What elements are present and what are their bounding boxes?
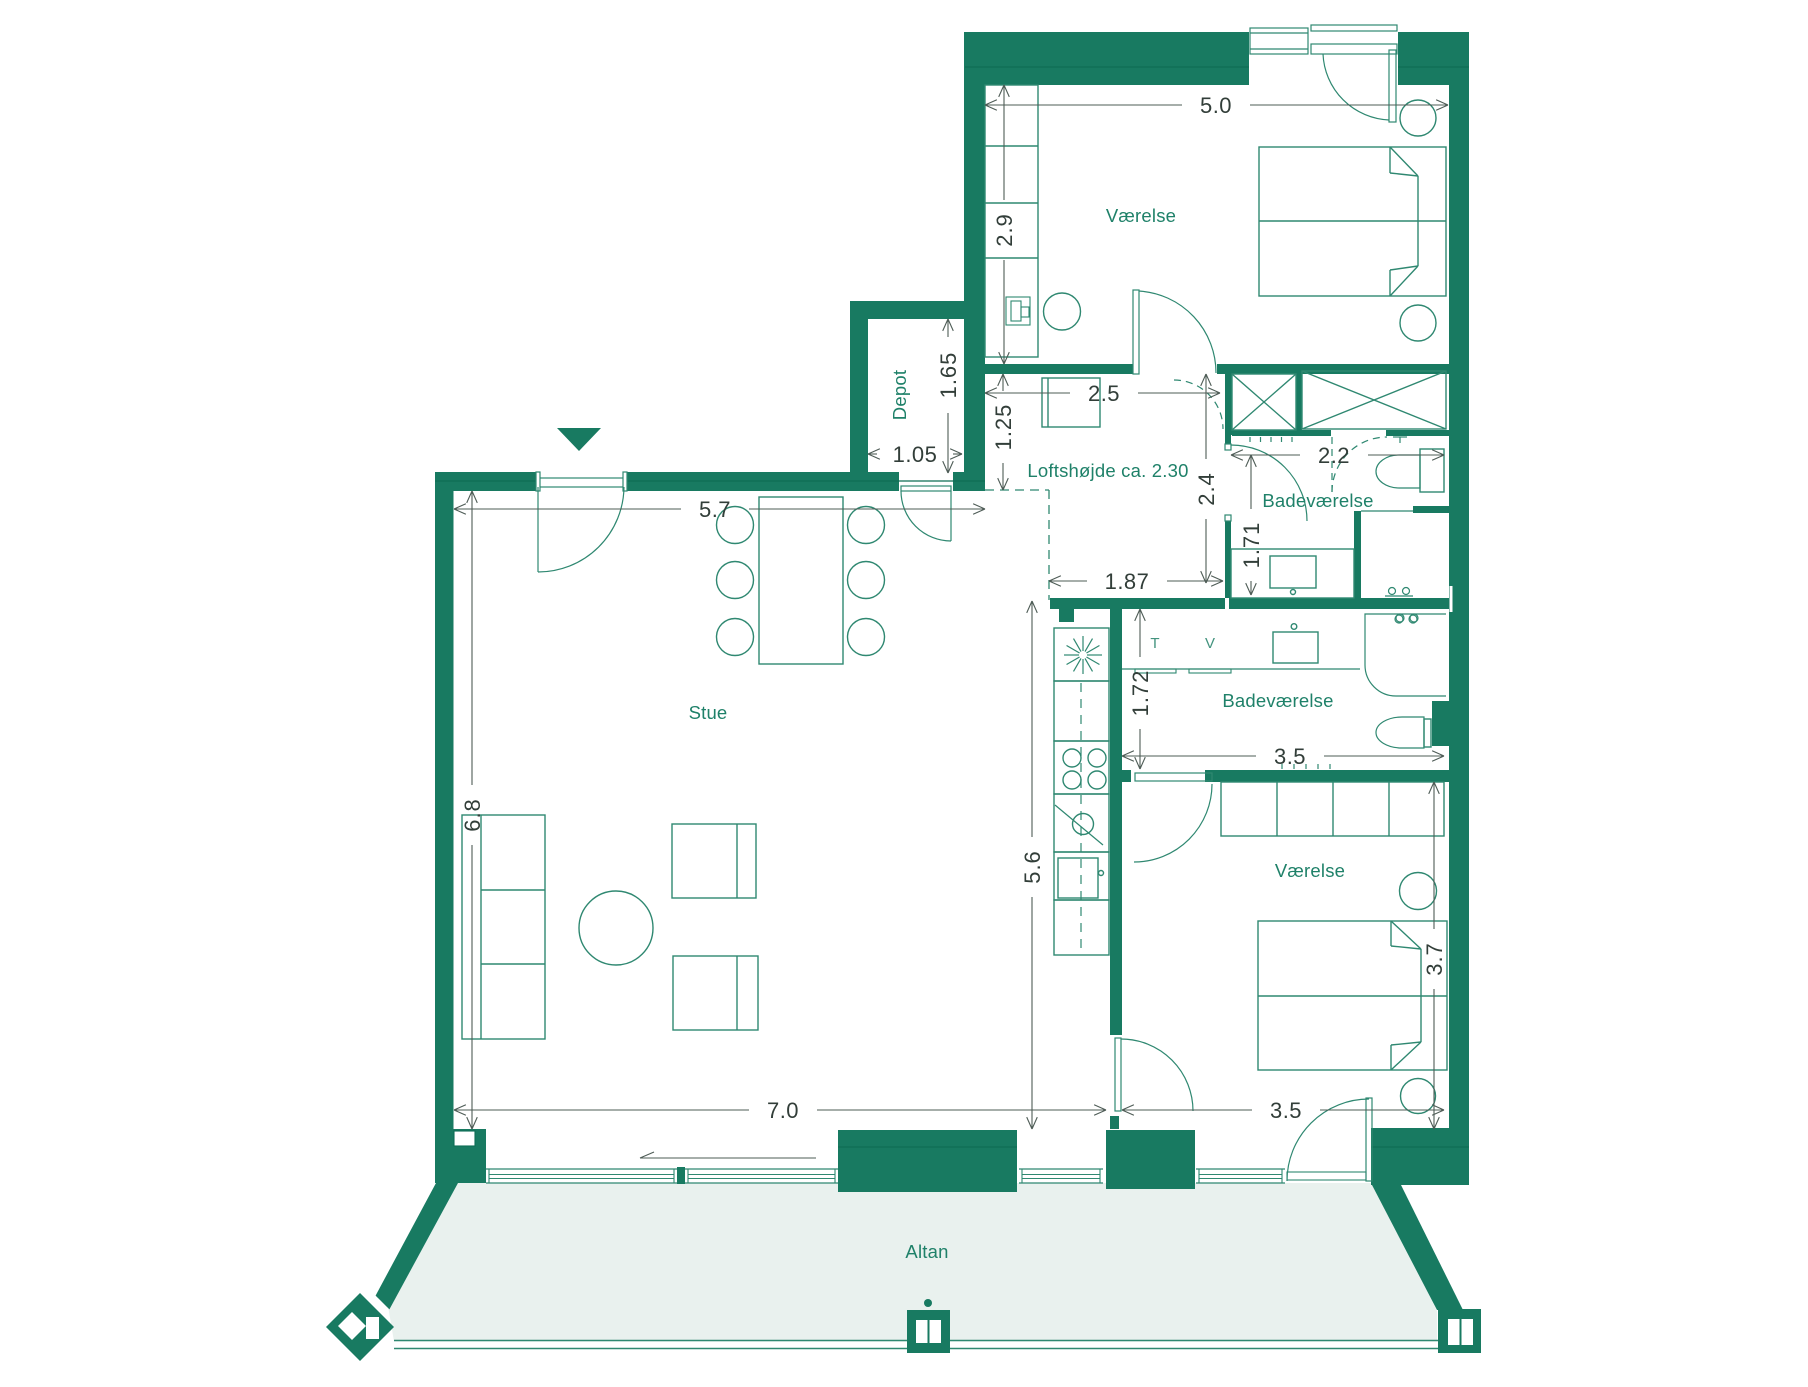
svg-text:Badeværelse: Badeværelse — [1222, 690, 1333, 711]
svg-text:V: V — [1205, 635, 1215, 652]
svg-text:Værelse: Værelse — [1275, 860, 1345, 881]
svg-text:3.5: 3.5 — [1270, 1098, 1302, 1123]
svg-text:Stue: Stue — [689, 702, 728, 723]
svg-text:3.7: 3.7 — [1422, 942, 1447, 976]
svg-text:2.4: 2.4 — [1194, 472, 1219, 506]
svg-text:Depot: Depot — [889, 370, 910, 420]
svg-text:T: T — [1150, 635, 1159, 652]
svg-text:1.87: 1.87 — [1105, 569, 1150, 594]
svg-text:2.2: 2.2 — [1318, 443, 1350, 468]
svg-text:1.72: 1.72 — [1128, 670, 1153, 717]
svg-text:1.65: 1.65 — [936, 352, 961, 399]
svg-text:2.9: 2.9 — [992, 213, 1017, 247]
svg-text:5.0: 5.0 — [1200, 93, 1232, 118]
svg-text:2.5: 2.5 — [1088, 381, 1120, 406]
svg-text:5.7: 5.7 — [699, 497, 731, 522]
svg-text:1.25: 1.25 — [991, 404, 1016, 451]
svg-text:3.5: 3.5 — [1274, 744, 1306, 769]
svg-text:Badeværelse: Badeværelse — [1262, 490, 1373, 511]
svg-text:Værelse: Værelse — [1106, 205, 1176, 226]
svg-text:1.71: 1.71 — [1239, 522, 1264, 569]
svg-text:5.6: 5.6 — [1020, 850, 1045, 884]
svg-text:7.0: 7.0 — [767, 1098, 799, 1123]
svg-text:6.8: 6.8 — [460, 798, 485, 832]
svg-text:Altan: Altan — [905, 1241, 948, 1262]
svg-text:Loftshøjde ca. 2.30: Loftshøjde ca. 2.30 — [1027, 460, 1188, 481]
svg-text:1.05: 1.05 — [893, 442, 938, 467]
